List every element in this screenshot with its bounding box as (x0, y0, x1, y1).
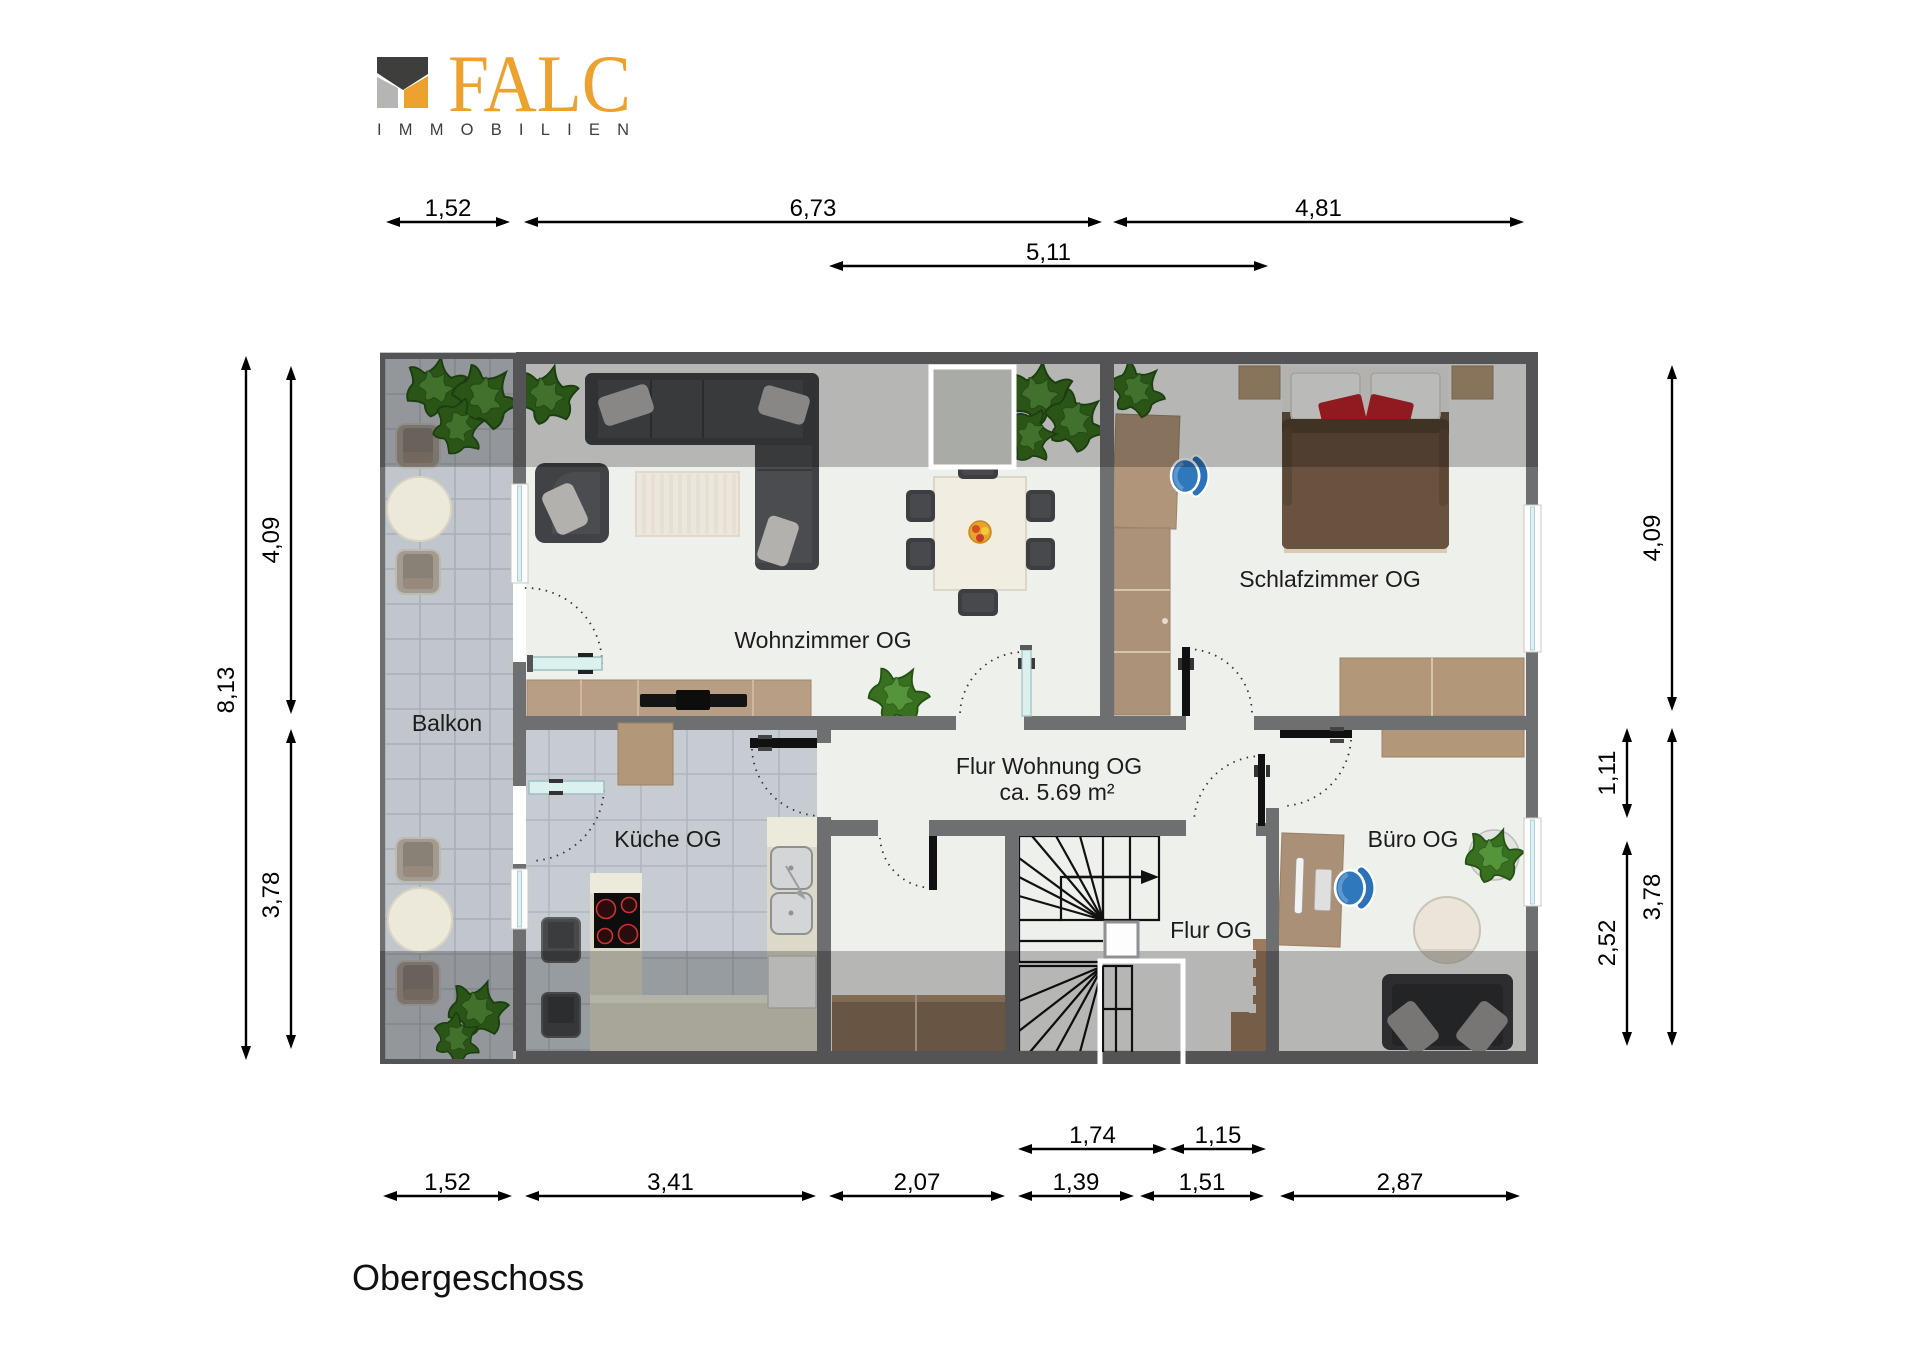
svg-text:FALC: FALC (448, 38, 631, 129)
svg-text:2,87: 2,87 (1377, 1169, 1424, 1196)
svg-text:2,52: 2,52 (1594, 920, 1621, 967)
svg-text:ca. 5.69 m²: ca. 5.69 m² (999, 779, 1114, 805)
svg-text:2,07: 2,07 (894, 1169, 941, 1196)
svg-text:Flur Wohnung OG: Flur Wohnung OG (956, 753, 1142, 779)
svg-text:1,52: 1,52 (424, 1169, 471, 1196)
svg-text:4,09: 4,09 (1639, 515, 1666, 562)
svg-text:Küche OG: Küche OG (614, 826, 721, 852)
svg-text:4,81: 4,81 (1295, 195, 1342, 222)
svg-text:Balkon: Balkon (412, 710, 482, 736)
svg-text:1,11: 1,11 (1594, 751, 1621, 796)
svg-text:5,11: 5,11 (1026, 239, 1071, 266)
svg-text:1,15: 1,15 (1195, 1122, 1242, 1149)
svg-text:Flur OG: Flur OG (1170, 917, 1252, 943)
svg-text:8,13: 8,13 (213, 667, 240, 714)
svg-text:Wohnzimmer OG: Wohnzimmer OG (734, 627, 911, 653)
svg-text:Büro OG: Büro OG (1368, 826, 1459, 852)
svg-text:3,41: 3,41 (647, 1169, 694, 1196)
svg-text:3,78: 3,78 (1639, 874, 1666, 921)
svg-text:1,51: 1,51 (1179, 1169, 1226, 1196)
svg-text:Schlafzimmer OG: Schlafzimmer OG (1239, 566, 1420, 592)
svg-text:3,78: 3,78 (258, 872, 285, 919)
svg-text:Obergeschoss: Obergeschoss (352, 1257, 584, 1298)
svg-text:1,52: 1,52 (425, 195, 472, 222)
svg-text:1,39: 1,39 (1053, 1169, 1100, 1196)
svg-text:1,74: 1,74 (1069, 1122, 1116, 1149)
svg-text:6,73: 6,73 (790, 195, 837, 222)
svg-text:4,09: 4,09 (258, 517, 285, 564)
